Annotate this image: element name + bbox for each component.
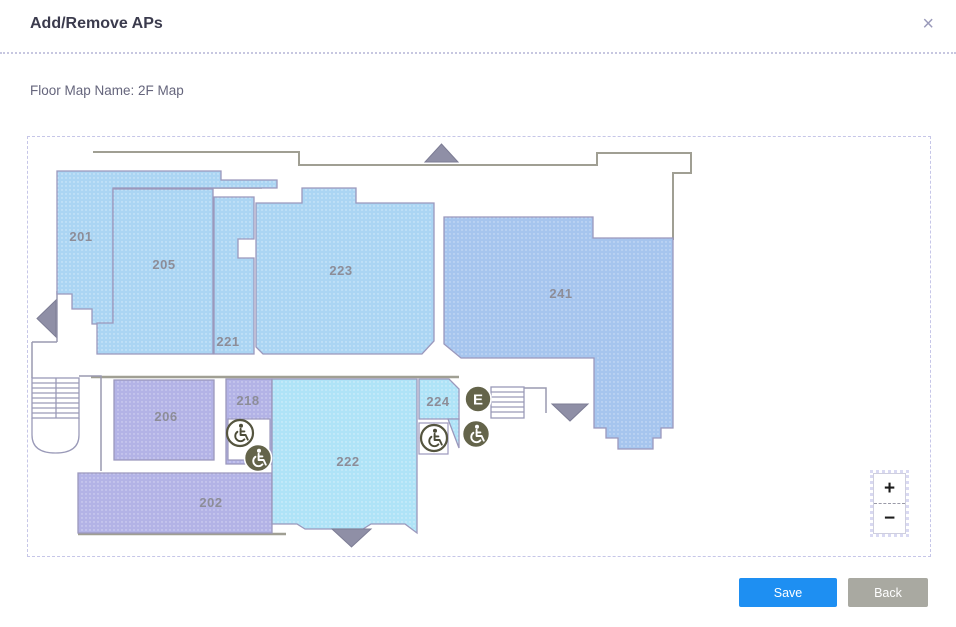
room-241-label: 241 bbox=[549, 286, 572, 301]
floorplan-svg: 201 205 221 223 241 206 218 224 222 202 bbox=[28, 137, 930, 556]
room-205-label: 205 bbox=[152, 257, 175, 272]
room-221-shape bbox=[214, 197, 254, 354]
down-arrow-icon bbox=[552, 404, 588, 421]
left-arrow-icon bbox=[37, 300, 56, 337]
room-224-label: 224 bbox=[426, 394, 449, 409]
room-202-label: 202 bbox=[199, 495, 222, 510]
room-201-label: 201 bbox=[69, 229, 92, 244]
room-241-shape bbox=[444, 217, 673, 449]
back-button[interactable]: Back bbox=[848, 578, 928, 607]
floor-map-canvas[interactable]: 201 205 221 223 241 206 218 224 222 202 bbox=[27, 136, 931, 557]
dialog-title: Add/Remove APs bbox=[30, 15, 163, 33]
zoom-out-button[interactable]: − bbox=[874, 504, 905, 533]
zoom-in-button[interactable]: + bbox=[874, 474, 905, 504]
header-separator bbox=[0, 52, 956, 54]
wheelchair-accessible-icon bbox=[463, 421, 490, 448]
floor-map-name-label: Floor Map Name: 2F Map bbox=[30, 83, 184, 98]
room-218-label: 218 bbox=[236, 393, 259, 408]
stairs-left bbox=[32, 378, 79, 453]
room-223-label: 223 bbox=[329, 263, 352, 278]
stairs-right bbox=[491, 387, 524, 418]
wheelchair-accessible-icon bbox=[227, 420, 253, 446]
dialog-footer: Save Back bbox=[0, 566, 956, 627]
up-arrow-icon bbox=[425, 144, 458, 162]
rooms-layer bbox=[57, 171, 673, 533]
elevator-letter: E bbox=[473, 391, 483, 408]
map-zoom-widget: + − bbox=[873, 473, 906, 534]
room-202-shape bbox=[78, 473, 272, 533]
room-221-label: 221 bbox=[216, 334, 239, 349]
close-icon[interactable]: × bbox=[922, 14, 934, 34]
wheelchair-accessible-icon bbox=[245, 445, 272, 472]
elevator-icon: E bbox=[465, 386, 491, 412]
down-arrow-icon bbox=[332, 529, 371, 547]
dialog-header: Add/Remove APs × bbox=[0, 0, 956, 52]
save-button[interactable]: Save bbox=[739, 578, 837, 607]
room-206-label: 206 bbox=[154, 409, 177, 424]
room-224-annex-shape bbox=[448, 419, 459, 448]
wheelchair-accessible-icon bbox=[421, 425, 447, 451]
add-remove-aps-dialog: { "header": { "title": "Add/Remove APs",… bbox=[0, 0, 956, 627]
room-222-label: 222 bbox=[336, 454, 359, 469]
